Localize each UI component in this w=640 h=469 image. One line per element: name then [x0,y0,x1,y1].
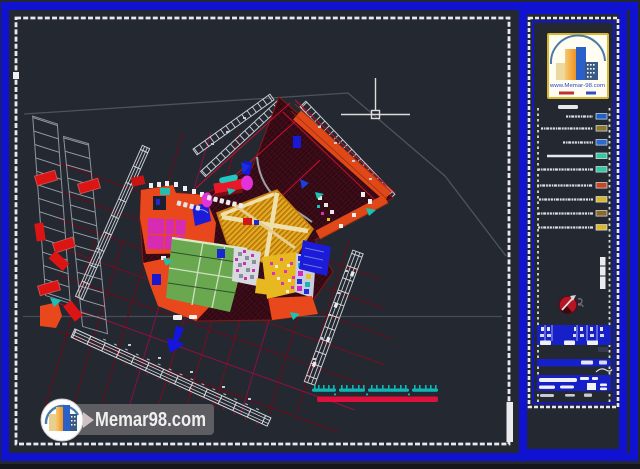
svg-text:Memar98.com: Memar98.com [95,409,206,431]
svg-text:www.Memar-98.com: www.Memar-98.com [549,83,606,89]
